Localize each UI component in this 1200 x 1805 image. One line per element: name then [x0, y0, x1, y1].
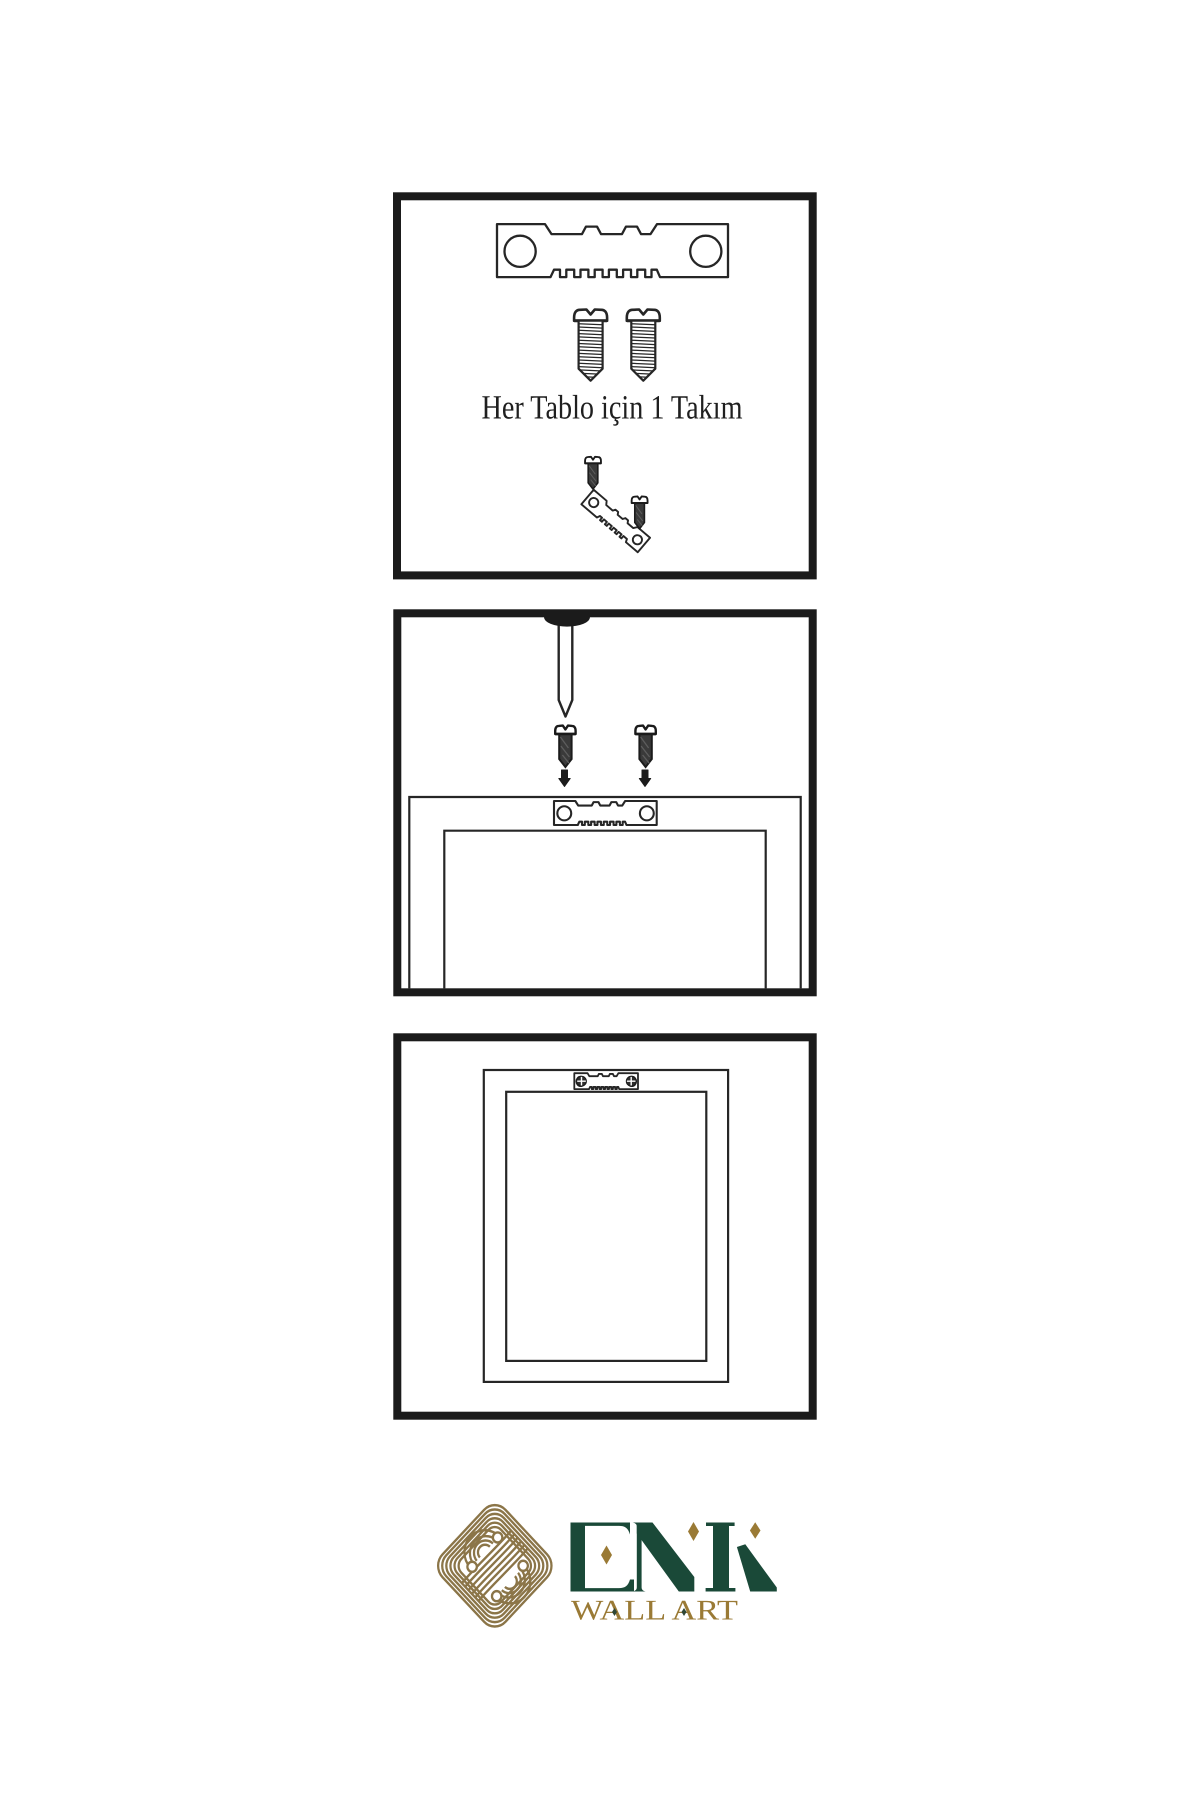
svg-text:Her Tablo için 1 Takım: Her Tablo için 1 Takım — [482, 390, 743, 427]
svg-text:WALL ART: WALL ART — [571, 1596, 738, 1627]
